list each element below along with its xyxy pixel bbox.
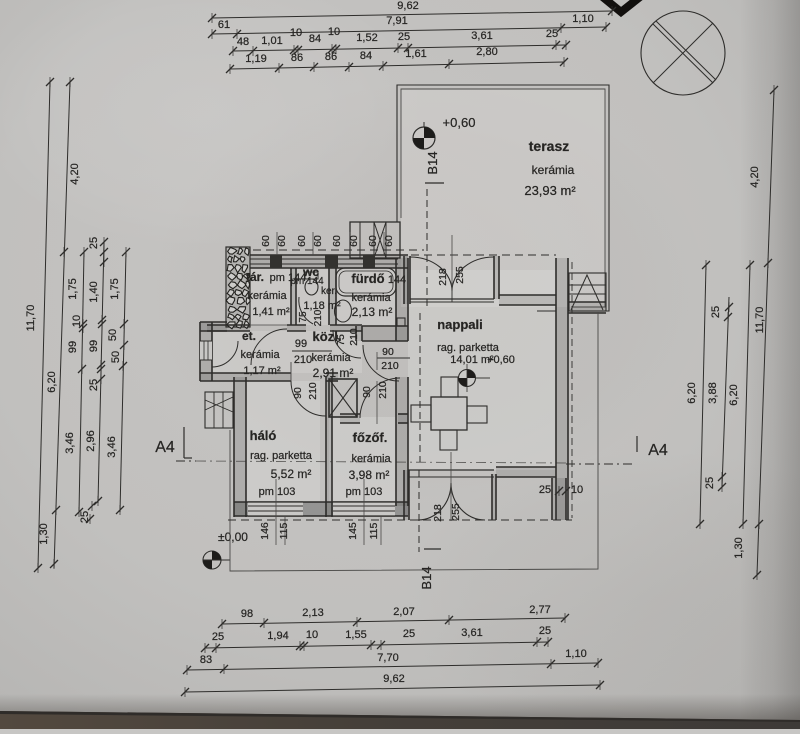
svg-text:11,70: 11,70: [25, 305, 37, 332]
svg-text:1,55: 1,55: [345, 629, 366, 641]
svg-text:főzőf.: főzőf.: [353, 430, 388, 445]
svg-text:2,80: 2,80: [476, 46, 497, 58]
svg-text:25: 25: [398, 31, 410, 43]
svg-text:6,20: 6,20: [46, 371, 58, 392]
svg-text:9,62: 9,62: [383, 673, 404, 685]
svg-text:60: 60: [276, 235, 288, 247]
svg-text:A4: A4: [155, 439, 175, 456]
svg-text:90: 90: [292, 387, 304, 399]
svg-text:255: 255: [450, 503, 462, 521]
svg-text:25: 25: [539, 625, 551, 637]
svg-text:25: 25: [704, 477, 716, 489]
svg-text:210: 210: [377, 381, 389, 399]
svg-text:115: 115: [278, 522, 290, 539]
svg-text:25: 25: [539, 484, 551, 496]
svg-text:86: 86: [291, 52, 303, 64]
svg-text:6,20: 6,20: [686, 382, 698, 403]
svg-text:84: 84: [360, 50, 372, 62]
svg-text:kerámia: kerámia: [351, 453, 391, 465]
svg-text:4,20: 4,20: [749, 166, 761, 187]
svg-text:10: 10: [306, 629, 318, 641]
svg-text:1,52: 1,52: [356, 32, 377, 44]
svg-text:1,17 m²: 1,17 m²: [243, 365, 281, 377]
svg-text:210: 210: [381, 360, 399, 372]
svg-text:60: 60: [367, 235, 379, 247]
svg-text:3,61: 3,61: [471, 30, 492, 42]
svg-text:23,93 m²: 23,93 m²: [524, 183, 576, 198]
svg-text:±0,00: ±0,00: [218, 530, 248, 544]
svg-text:3,61: 3,61: [461, 627, 482, 639]
svg-text:218: 218: [437, 268, 449, 286]
svg-text:75: 75: [298, 311, 309, 323]
svg-text:kerámia: kerámia: [351, 292, 391, 304]
svg-text:1,40: 1,40: [88, 281, 100, 302]
svg-text:60: 60: [296, 235, 308, 247]
svg-text:rag. parketta: rag. parketta: [250, 450, 313, 462]
svg-text:90: 90: [361, 386, 373, 398]
svg-text:10: 10: [71, 315, 83, 327]
svg-text:2,91 m²: 2,91 m²: [313, 366, 354, 380]
svg-text:1,30: 1,30: [38, 523, 50, 544]
svg-text:1,01: 1,01: [261, 35, 282, 47]
svg-text:10: 10: [571, 484, 583, 496]
svg-text:2,13 m²: 2,13 m²: [352, 305, 393, 319]
svg-text:B14: B14: [425, 151, 440, 174]
svg-text:210: 210: [307, 382, 319, 400]
svg-text:60: 60: [383, 235, 395, 247]
svg-text:210: 210: [348, 328, 360, 346]
svg-text:ker.: ker.: [321, 286, 337, 297]
svg-text:10: 10: [290, 27, 302, 39]
svg-text:1,75: 1,75: [109, 278, 121, 299]
svg-text:+0,60: +0,60: [443, 115, 476, 130]
svg-text:50: 50: [107, 329, 119, 341]
svg-text:1,94: 1,94: [267, 630, 288, 642]
svg-text:kerámia: kerámia: [247, 290, 287, 302]
svg-text:A4: A4: [648, 442, 668, 459]
svg-text:kerámia: kerámia: [532, 163, 575, 177]
svg-text:rag. parketta: rag. parketta: [437, 342, 500, 354]
svg-text:60: 60: [260, 235, 272, 247]
svg-text:145: 145: [347, 522, 359, 540]
svg-text:pm 103: pm 103: [346, 486, 383, 498]
svg-text:2,96: 2,96: [85, 430, 97, 451]
svg-text:9,62: 9,62: [397, 0, 418, 12]
svg-text:1,30: 1,30: [733, 537, 745, 558]
svg-text:nappali: nappali: [437, 317, 483, 332]
svg-text:218: 218: [432, 504, 444, 522]
svg-text:pm 144: pm 144: [290, 276, 324, 287]
svg-text:84: 84: [309, 33, 321, 45]
svg-text:közl.: közl.: [313, 329, 342, 344]
svg-text:1,19: 1,19: [245, 53, 266, 65]
svg-text:144: 144: [388, 274, 406, 286]
svg-text:83: 83: [200, 654, 212, 666]
svg-text:7,91: 7,91: [386, 15, 407, 27]
svg-text:255: 255: [454, 266, 466, 284]
svg-text:210: 210: [294, 354, 312, 366]
svg-text:terasz: terasz: [529, 138, 569, 154]
svg-text:25: 25: [546, 28, 558, 40]
svg-text:60: 60: [331, 235, 343, 247]
svg-text:99: 99: [88, 340, 100, 352]
svg-text:98: 98: [241, 608, 253, 620]
svg-text:1,41 m²: 1,41 m²: [252, 306, 290, 318]
svg-text:11,70: 11,70: [754, 307, 766, 334]
svg-text:99: 99: [67, 341, 79, 353]
svg-text:60: 60: [348, 235, 360, 247]
svg-text:3,46: 3,46: [64, 432, 76, 453]
svg-text:25: 25: [403, 628, 415, 640]
svg-text:1,75: 1,75: [67, 278, 79, 299]
svg-text:7,70: 7,70: [377, 652, 398, 664]
svg-text:48: 48: [237, 36, 249, 48]
svg-text:60: 60: [312, 235, 324, 247]
svg-text:kerámia: kerámia: [311, 352, 351, 364]
svg-text:tár.: tár.: [246, 270, 264, 284]
svg-text:2,77: 2,77: [529, 604, 550, 616]
svg-text:2,13: 2,13: [302, 607, 323, 619]
svg-text:+0,60: +0,60: [487, 354, 515, 366]
svg-text:61: 61: [218, 19, 230, 31]
svg-text:25: 25: [212, 631, 224, 643]
svg-text:3,98 m²: 3,98 m²: [349, 468, 390, 482]
svg-text:5,52 m²: 5,52 m²: [271, 467, 312, 481]
svg-text:115: 115: [368, 522, 380, 539]
svg-text:25: 25: [79, 511, 91, 523]
svg-text:3,88: 3,88: [707, 382, 719, 403]
svg-text:90: 90: [382, 346, 394, 358]
svg-text:25: 25: [88, 379, 100, 391]
svg-text:1,61: 1,61: [405, 48, 426, 60]
svg-text:háló: háló: [250, 428, 277, 443]
svg-text:pm 103: pm 103: [259, 486, 296, 498]
svg-text:fürdő: fürdő: [351, 271, 384, 286]
svg-text:1,10: 1,10: [572, 13, 593, 25]
svg-text:86: 86: [325, 51, 337, 63]
svg-text:6,20: 6,20: [728, 384, 740, 405]
svg-text:2,07: 2,07: [393, 606, 414, 618]
svg-text:99: 99: [295, 338, 307, 350]
svg-text:10: 10: [328, 26, 340, 38]
svg-text:146: 146: [259, 522, 271, 540]
svg-text:25: 25: [88, 237, 100, 249]
svg-text:kerámia: kerámia: [240, 349, 280, 361]
svg-text:1,10: 1,10: [565, 648, 586, 660]
svg-text:4,20: 4,20: [69, 163, 81, 184]
svg-text:25: 25: [710, 306, 722, 318]
svg-text:1,18 m²: 1,18 m²: [303, 300, 341, 312]
svg-text:3,46: 3,46: [106, 436, 118, 457]
svg-text:50: 50: [110, 351, 122, 363]
svg-text:et.: et.: [242, 329, 256, 343]
